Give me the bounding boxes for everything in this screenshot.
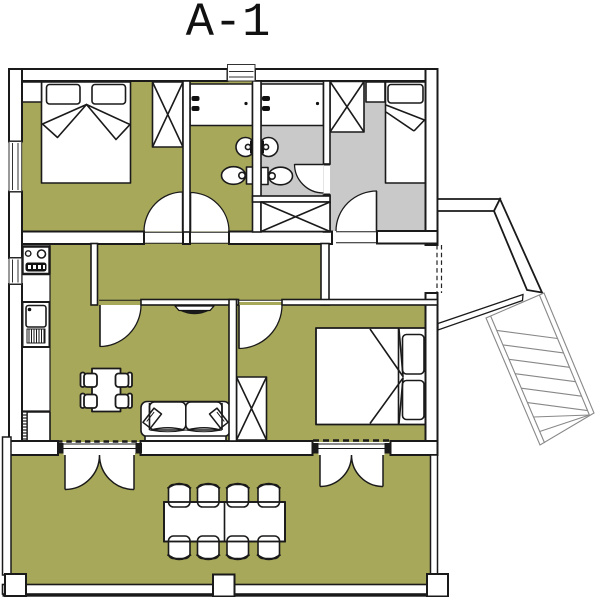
svg-text:A-1: A-1	[186, 0, 271, 50]
